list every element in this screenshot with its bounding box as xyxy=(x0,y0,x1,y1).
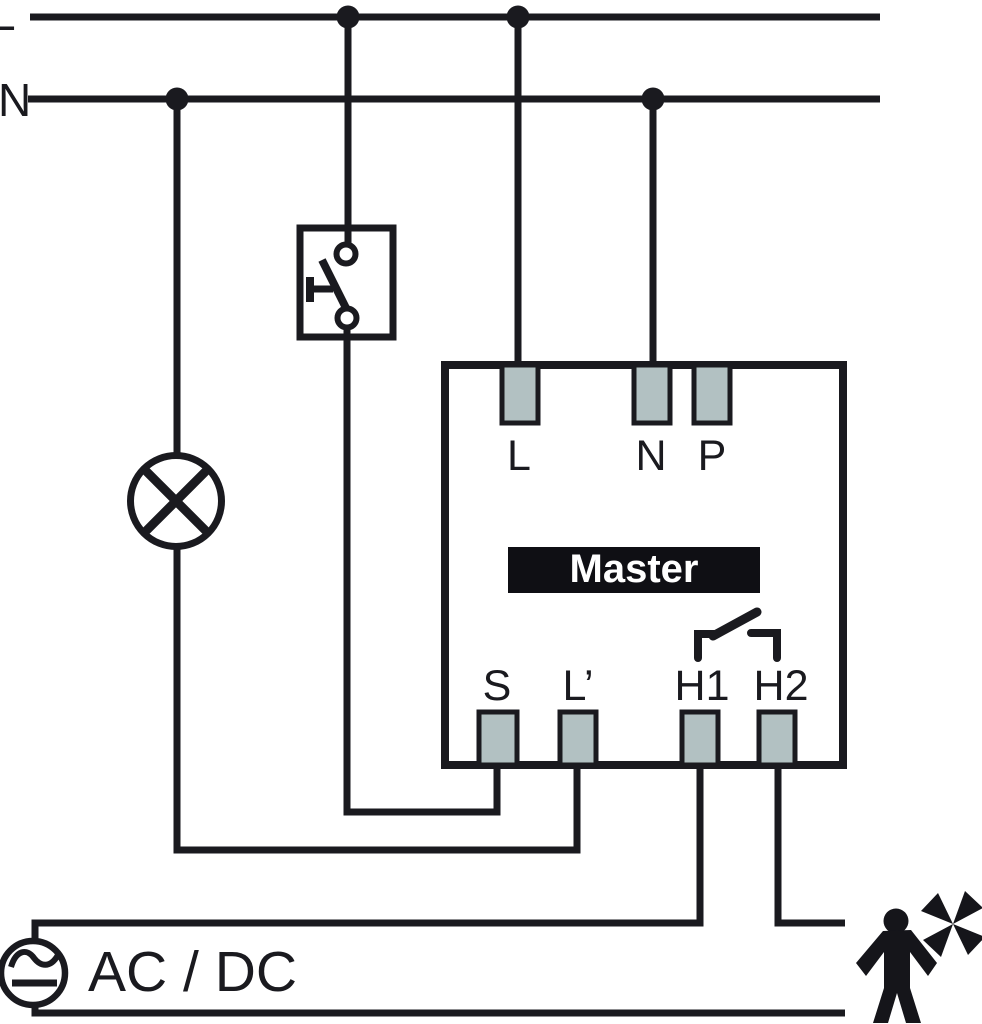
junction-dot xyxy=(642,88,665,111)
wire-source-return xyxy=(35,1005,845,1013)
terminal-l xyxy=(502,365,538,423)
wiring-diagram: L N xyxy=(0,0,982,1024)
person-fan-icon xyxy=(856,891,982,1023)
terminal-h1-label: H1 xyxy=(675,662,730,710)
fan-blade xyxy=(953,891,982,924)
neutral-bus-label: N xyxy=(0,74,31,126)
fan-blade xyxy=(921,893,953,924)
person-head xyxy=(884,909,909,934)
junction-dot xyxy=(166,88,189,111)
junction-dot xyxy=(337,6,360,29)
switch-contact-bottom xyxy=(338,309,357,328)
terminal-n-label: N xyxy=(635,432,666,480)
junction-dot xyxy=(507,6,530,29)
terminal-lprime-label: L’ xyxy=(562,662,593,710)
switch-contact-top xyxy=(337,245,356,264)
diagram-canvas: L N xyxy=(0,0,982,1024)
terminal-s-label: S xyxy=(483,662,512,710)
lamp-icon xyxy=(131,456,222,547)
fan-blades xyxy=(921,891,982,957)
ac-dc-source-icon xyxy=(1,941,65,1005)
terminal-h1 xyxy=(682,712,718,765)
terminal-p-label: P xyxy=(698,432,727,480)
terminal-s xyxy=(479,712,517,765)
terminal-p xyxy=(694,365,730,423)
fan-blade xyxy=(953,924,982,955)
live-bus-label: L xyxy=(0,0,16,40)
push-button-switch-icon xyxy=(300,228,393,337)
terminal-lprime xyxy=(560,712,596,765)
source-circle xyxy=(1,941,65,1005)
terminal-l-label: L xyxy=(507,432,531,480)
master-device: L N P Master S L’ H1 H2 xyxy=(445,365,843,765)
wire-h2-to-load xyxy=(778,763,845,923)
person-body xyxy=(856,930,937,1023)
terminal-h2-label: H2 xyxy=(754,662,809,710)
terminal-h2 xyxy=(759,712,795,765)
ac-dc-label: AC / DC xyxy=(88,940,297,1004)
terminal-n xyxy=(634,365,670,423)
junction-dots xyxy=(166,6,665,111)
master-name-label: Master xyxy=(570,547,699,591)
